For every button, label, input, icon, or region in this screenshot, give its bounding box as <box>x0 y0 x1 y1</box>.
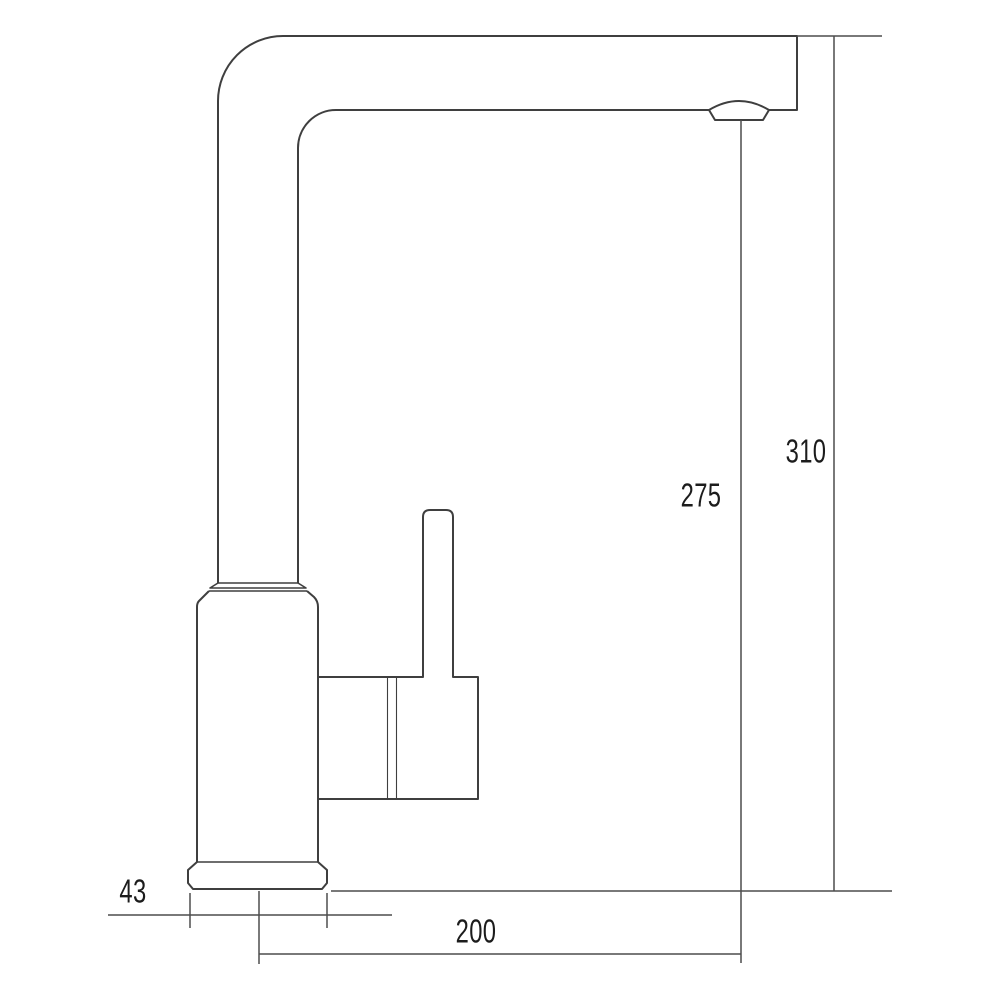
handle-lever-and-housing <box>318 510 478 799</box>
flange-contour <box>188 862 327 889</box>
dimension-label-overall-height: 310 <box>786 435 827 468</box>
dimension-label-base-width: 43 <box>119 875 146 908</box>
body-outline <box>197 591 318 862</box>
base-flange <box>188 862 327 889</box>
body-left-edge <box>197 591 209 862</box>
housing-seam-lines <box>388 677 397 799</box>
technical-drawing-canvas: 43 200 275 310 <box>0 0 1000 1000</box>
dimension-label-spout-reach: 200 <box>456 915 497 948</box>
dimension-label-spout-height: 275 <box>681 479 722 512</box>
spout-inner-contour <box>298 110 709 583</box>
dimension-spout-reach <box>259 891 741 964</box>
aerator-head <box>709 101 769 120</box>
collar-ring <box>209 583 307 591</box>
body-right-edge <box>307 591 318 862</box>
dimension-base-width <box>108 893 392 928</box>
handle-assembly <box>318 510 478 799</box>
faucet-line-drawing <box>0 0 1000 1000</box>
